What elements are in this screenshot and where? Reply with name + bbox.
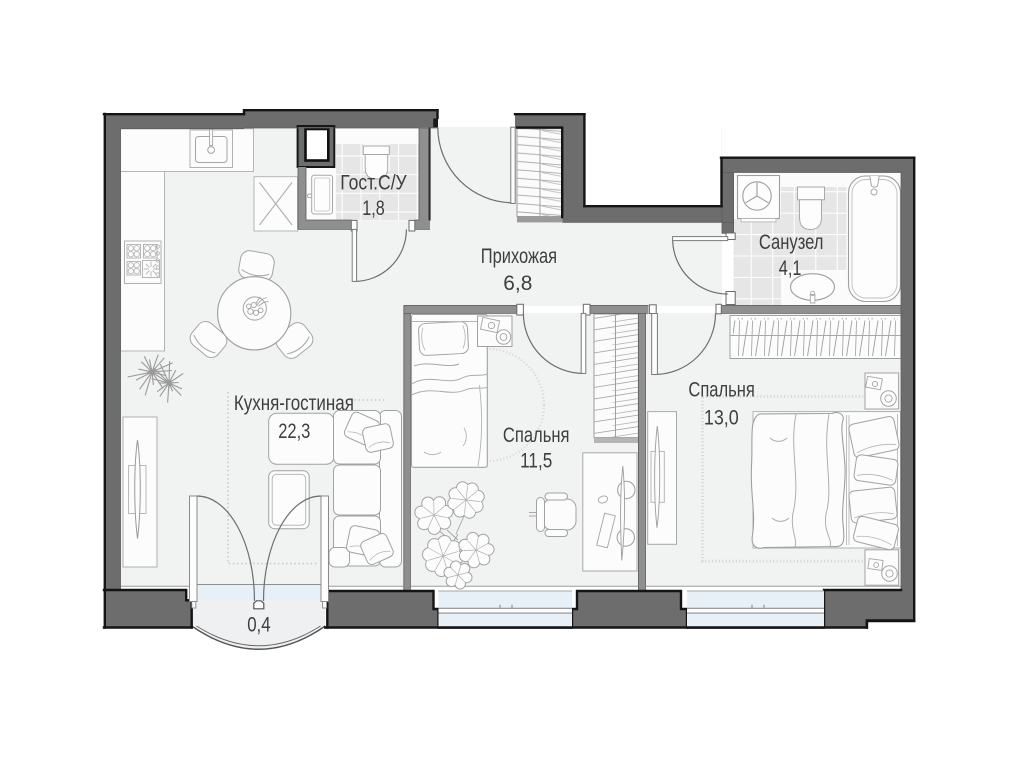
svg-text:Кухня-гостиная: Кухня-гостиная [234,392,354,415]
svg-text:22,3: 22,3 [278,420,310,443]
svg-text:Прихожая: Прихожая [481,245,557,268]
svg-text:Спальня: Спальня [503,424,570,447]
svg-text:11,5: 11,5 [520,450,552,473]
svg-text:1,8: 1,8 [362,197,385,220]
svg-text:Спальня: Спальня [688,378,754,401]
svg-text:Гост.С/У: Гост.С/У [340,171,407,194]
svg-text:Санузел: Санузел [759,231,824,254]
svg-text:4,1: 4,1 [779,257,802,280]
svg-text:6,8: 6,8 [503,272,532,295]
svg-text:0,4: 0,4 [247,614,271,637]
svg-text:13,0: 13,0 [704,406,739,429]
